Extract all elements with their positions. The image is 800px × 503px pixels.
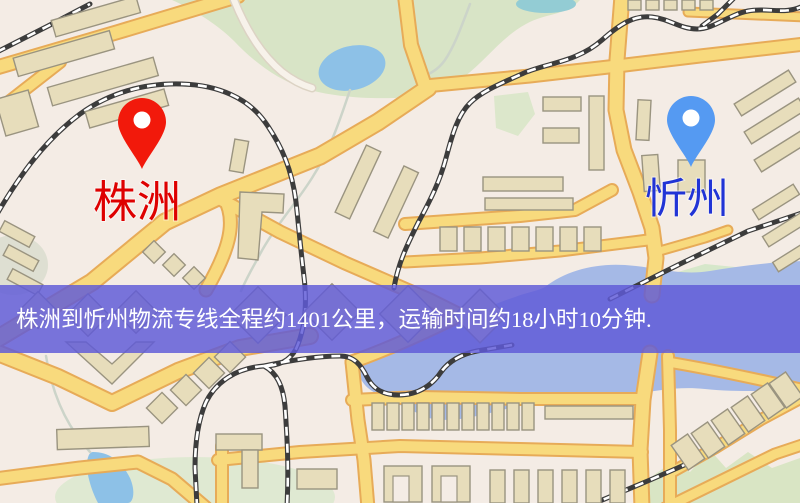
map-screenshot: [data-name="road-casings"] use{fill:none…	[0, 0, 800, 503]
destination-label: 忻州	[645, 177, 729, 223]
map-canvas: [data-name="road-casings"] use{fill:none…	[0, 0, 800, 503]
origin-label: 株洲	[93, 178, 181, 227]
route-info-banner: 株洲到忻州物流专线全程约1401公里，运输时间约18小时10分钟.	[0, 285, 800, 353]
banner-text: 株洲到忻州物流专线全程约1401公里，运输时间约18小时10分钟.	[16, 307, 652, 332]
destination-pin-hole	[683, 110, 700, 127]
origin-pin-hole	[134, 112, 151, 129]
